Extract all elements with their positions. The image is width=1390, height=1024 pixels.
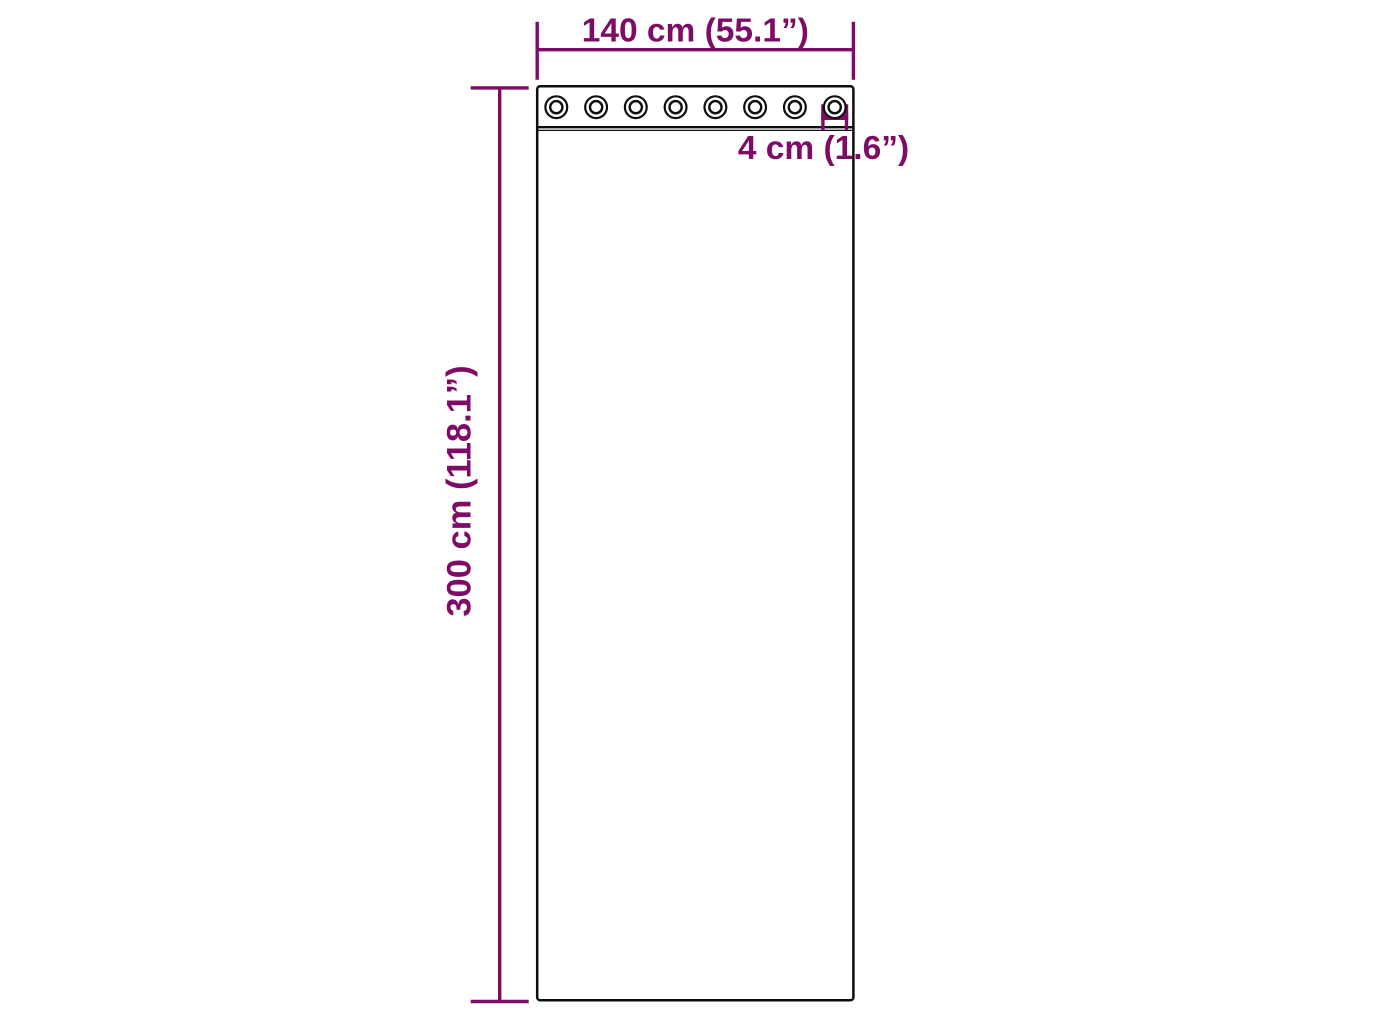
svg-text:300 cm (118.1”): 300 cm (118.1”) xyxy=(441,365,479,616)
svg-text:4 cm (1.6”): 4 cm (1.6”) xyxy=(738,130,909,167)
svg-text:140 cm (55.1”): 140 cm (55.1”) xyxy=(582,12,809,49)
